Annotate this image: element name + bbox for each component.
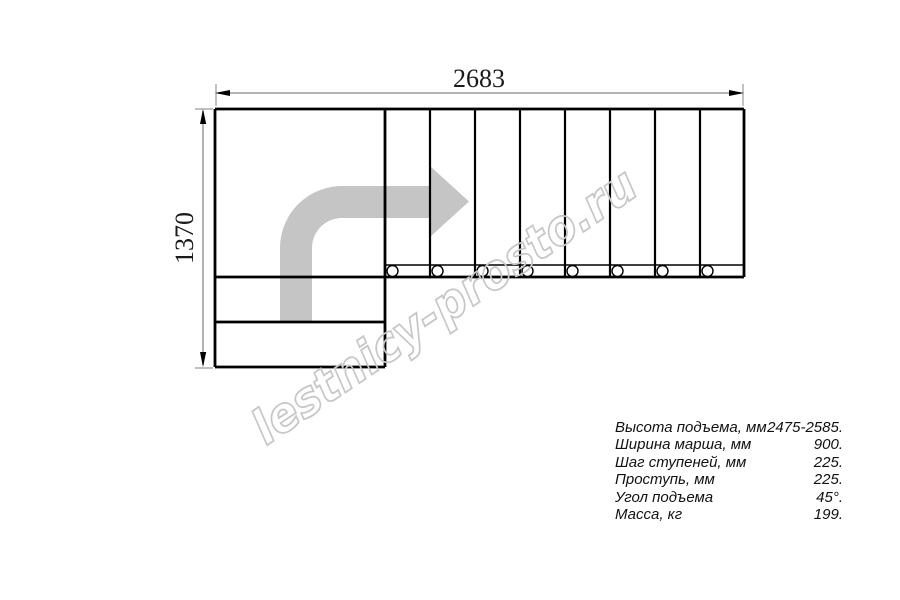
spec-label: Проступь, мм	[615, 471, 715, 488]
spec-value: 2475-2585.	[767, 419, 843, 436]
spec-value: 45°.	[816, 489, 843, 506]
spec-row: Проступь, мм 225.	[615, 471, 843, 488]
spec-label: Ширина марша, мм	[615, 436, 751, 453]
spec-label: Шаг ступеней, мм	[615, 454, 746, 471]
bolt-circle	[567, 266, 578, 277]
bolt-circle	[612, 266, 623, 277]
spec-row: Масса, кг 199.	[615, 506, 843, 523]
spec-row: Высота подъема, мм 2475-2585.	[615, 419, 843, 436]
spec-row: Шаг ступеней, мм 225.	[615, 454, 843, 471]
spec-row: Ширина марша, мм 900.	[615, 436, 843, 453]
dim-height-label: 1370	[170, 212, 199, 264]
spec-value: 900.	[814, 436, 843, 453]
spec-label: Высота подъема, мм	[615, 419, 767, 436]
specs-table: Высота подъема, мм 2475-2585. Ширина мар…	[615, 419, 843, 523]
spec-value: 199.	[814, 506, 843, 523]
dimension-height: 1370	[170, 109, 213, 368]
dimension-width: 2683	[215, 64, 744, 106]
spec-label: Масса, кг	[615, 506, 682, 523]
spec-value: 225.	[814, 454, 843, 471]
dim-arrowhead-left	[215, 90, 230, 96]
bolt-circle	[657, 266, 668, 277]
bolt-circle	[387, 266, 398, 277]
dim-arrowhead-right	[729, 90, 744, 96]
drawing-canvas: 2683 1370 lestnicy-prosto.ru Высота подъ…	[0, 0, 900, 600]
spec-value: 225.	[814, 471, 843, 488]
spec-row: Угол подъема 45°.	[615, 489, 843, 506]
bolt-circle	[702, 266, 713, 277]
dim-width-label: 2683	[453, 64, 505, 93]
dim-arrowhead-bottom	[200, 352, 206, 367]
dim-arrowhead-top	[200, 109, 206, 124]
spec-label: Угол подъема	[615, 489, 713, 506]
